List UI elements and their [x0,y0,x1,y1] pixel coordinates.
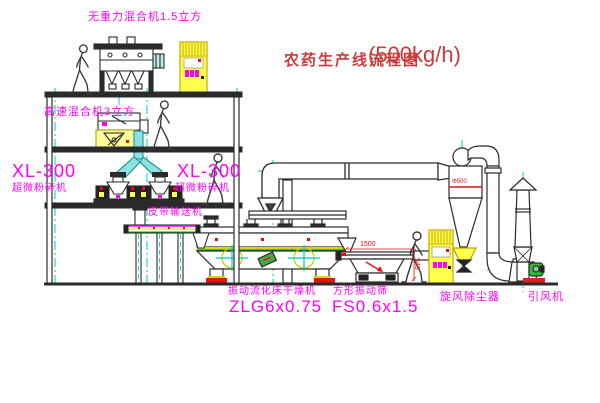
dimension-sieve-length: 1500 [360,241,376,248]
fan-base [523,278,545,283]
label-belt-conveyor: 皮带输送机 [148,208,203,218]
label-mill-right-name: 超微粉碎机 [175,184,230,194]
flow-diagram-canvas: 无重力混合机1.5立方 农药生产线流程图 (500kg/h) 高速混合机3立方 … [0,0,600,403]
dimension-cyclone-diameter: Φ500 [452,179,467,185]
label-cyclone: 旋风除尘器 [440,292,500,303]
control-cabinet-1 [180,42,207,95]
stack-tube [515,190,531,247]
person-figure [69,45,92,93]
floor-slab-top [45,92,242,97]
dryer-top-plate [197,227,348,233]
mixer-motor [153,54,164,68]
dimension-sieve-height: 545 [413,258,420,270]
label-mill-left-model: XL-300 [12,162,76,180]
person-figure [150,101,173,149]
dryer-body [197,233,348,247]
draft-fan-and-stack [509,178,545,283]
cyclone-discharge-funnel [453,248,476,260]
gravity-free-mixer [94,37,164,92]
cyclone-cone [449,198,482,247]
label-dryer-name: 振动流化床干燥机 [228,287,316,297]
label-high-speed-mixer: 高速混合机3立方 [44,107,135,118]
rotary-valve [457,260,471,266]
column-right [234,97,239,284]
conveyor-feed-pipe [135,210,145,225]
label-top-mixer: 无重力混合机1.5立方 [88,12,202,23]
cyclone-outlet-elbow [468,146,499,166]
stack-rain-cap [510,178,536,190]
label-fan: 引风机 [528,292,564,303]
downcomer-pipe [487,166,499,253]
label-sieve-name: 方形振动筛 [333,287,388,297]
floor-slab-lower [45,203,242,208]
sieve-base [350,259,404,273]
label-mill-right-model: XL-300 [177,162,241,180]
pulverizer-left [94,177,142,203]
label-mill-left-name: 超微粉碎机 [12,184,67,194]
control-cabinet-2 [429,230,453,284]
label-sieve-model: FS0.6x1.5 [332,298,419,315]
label-dryer-model: ZLG6x0.75 [229,298,322,315]
floor-slab-middle [45,147,242,152]
vibrating-sieve [336,238,435,282]
page-title-capacity: (500kg/h) [368,44,461,66]
